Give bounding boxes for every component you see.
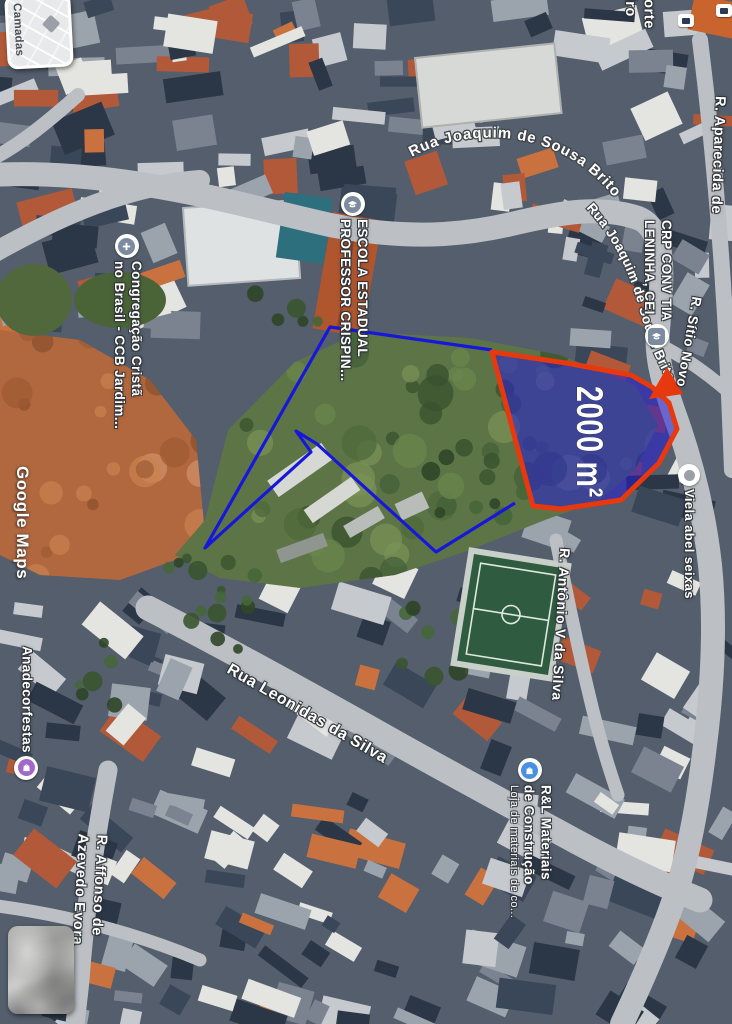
poi-cei[interactable]: CRP CONV TIALENINHA, CEI <box>640 220 674 348</box>
road-shield-icon <box>716 4 732 17</box>
satellite-imagery: Rua Joaquim de Sousa Brito Rua Joaquim d… <box>0 0 732 1024</box>
street-label-partial: Norteeiro <box>620 0 658 29</box>
photo-image <box>8 926 74 1014</box>
church-icon <box>115 234 139 258</box>
poi-rl-materiais[interactable]: R&L Materiaisde Construção Loja de mater… <box>506 758 554 918</box>
school-icon <box>645 324 669 348</box>
area-label: 2000 m² <box>569 386 610 498</box>
shopping-icon <box>14 756 38 780</box>
google-maps-watermark: Google Maps <box>12 466 32 579</box>
street-label: Viela abel seixas <box>681 489 697 599</box>
poi-label: R&L Materiaisde Construção Loja de mater… <box>506 785 554 918</box>
school-icon <box>341 192 365 216</box>
street-viela-abel[interactable]: Viela abel seixas <box>678 464 700 599</box>
poi-label: Anadecorfestas <box>18 646 35 753</box>
road-shield-icon <box>678 14 694 27</box>
poi-escola[interactable]: ESCOLA ESTADUALPROFESSOR CRISPIN... <box>336 192 370 382</box>
poi-dot-icon <box>678 464 700 486</box>
map-canvas[interactable]: Rua Joaquim de Sousa Brito Rua Joaquim d… <box>0 0 732 1024</box>
poi-ccb[interactable]: Congregação Cristãno Brasil - CCB Jardim… <box>110 234 144 429</box>
photo-thumbnail[interactable] <box>8 926 74 1014</box>
layers-widget[interactable]: Camadas <box>4 0 74 70</box>
poi-label: Congregação Cristãno Brasil - CCB Jardim… <box>110 261 144 429</box>
poi-label: CRP CONV TIALENINHA, CEI <box>640 220 674 321</box>
shopping-icon <box>518 758 542 782</box>
poi-label: ESCOLA ESTADUALPROFESSOR CRISPIN... <box>336 219 370 382</box>
poi-anadecorfestas[interactable]: Anadecorfestas <box>14 646 38 780</box>
